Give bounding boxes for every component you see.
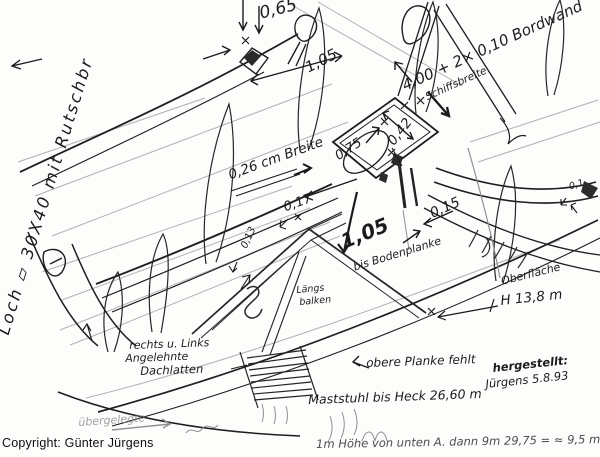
note-laengs: Längs	[296, 284, 325, 296]
scanned-sketch-sheet: Loch ▱ 30X40 mit Rutschbr 0,65 1,05 4,00…	[0, 0, 600, 457]
note-obere-planke-fehlt: obere Planke fehlt	[366, 353, 476, 369]
copyright-line: Copyright: Günter Jürgens	[2, 437, 154, 450]
note-dachlatten: Dachlatten	[140, 364, 204, 378]
note-rechts-links: rechts u. Links	[129, 337, 209, 351]
